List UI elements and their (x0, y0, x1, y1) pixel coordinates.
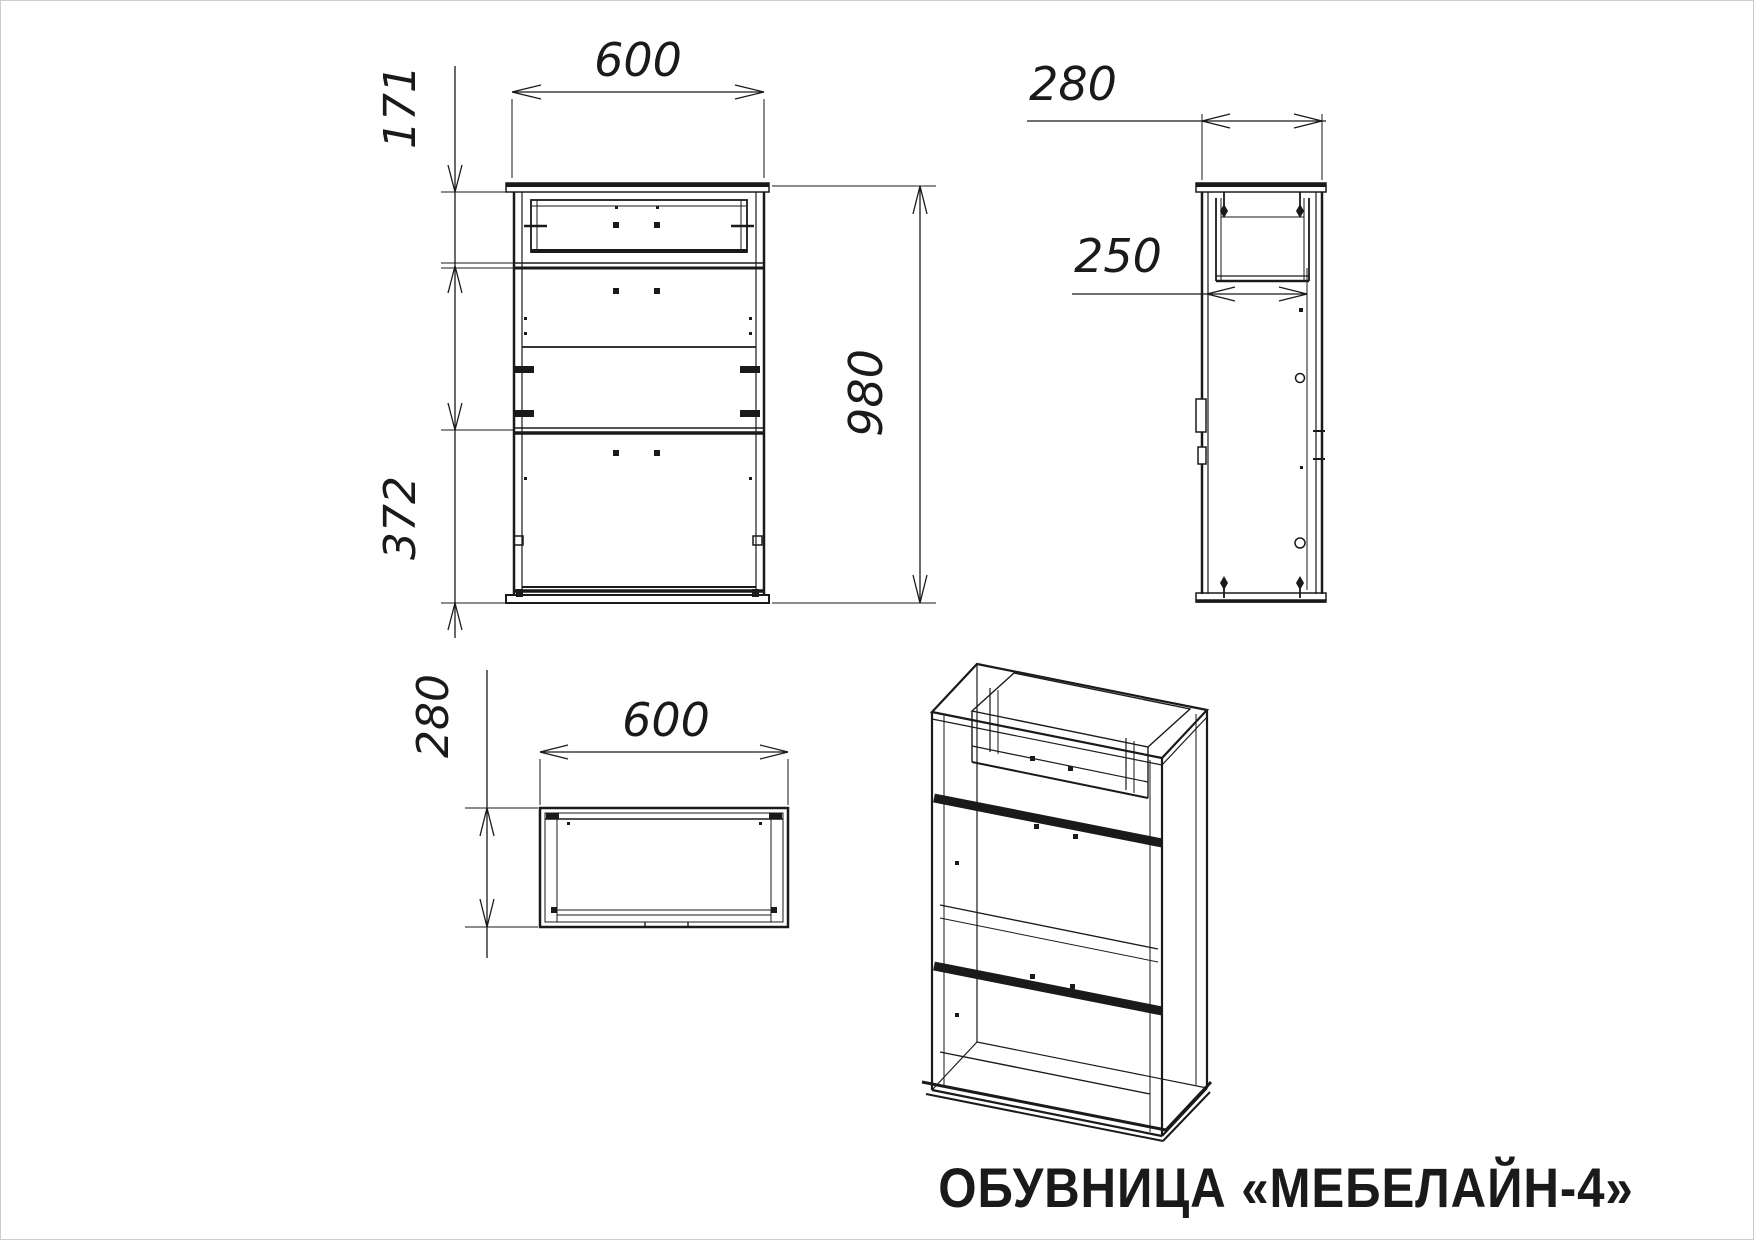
hinge-plate (1198, 447, 1206, 464)
screw-icon (1220, 576, 1228, 590)
page-title: ОБУВНИЦА «МЕБЕЛАЙН-4» (938, 1155, 1633, 1220)
screw-icon (1296, 576, 1304, 590)
dim-side-depth: 280 (1029, 57, 1117, 111)
dim-top-depth: 280 (408, 674, 459, 758)
front-view-dimensions: 600 171 372 980 (375, 33, 936, 638)
shelf-divider (934, 966, 1162, 1011)
mount-hole (1295, 538, 1305, 548)
front-drawer-niche (531, 200, 747, 252)
shelf-divider (934, 798, 1162, 843)
side-view: 280 250 (1027, 57, 1326, 602)
iso-view (922, 664, 1211, 1141)
dim-side-shelf-depth: 250 (1074, 229, 1162, 283)
front-view-cabinet (441, 183, 769, 603)
dim-front-top-section: 171 (375, 65, 426, 149)
mount-hole (1296, 374, 1305, 383)
top-view: 600 280 (408, 670, 788, 958)
caption-group: ОБУВНИЦА «МЕБЕЛАЙН-4» (938, 1155, 1633, 1220)
dim-front-width: 600 (594, 33, 682, 87)
dim-front-bottom-section: 372 (375, 476, 426, 560)
side-view-cabinet (1196, 183, 1326, 602)
top-view-cabinet (540, 808, 788, 927)
dim-front-height: 980 (839, 349, 893, 437)
blueprint-canvas: 600 171 372 980 (0, 0, 1754, 1240)
front-view: 600 171 372 980 (375, 33, 936, 638)
hinge-plate (1196, 399, 1206, 432)
dim-top-width: 600 (622, 693, 710, 747)
screw-icon (1296, 204, 1304, 218)
technical-drawing-sheet: 600 171 372 980 (0, 0, 1754, 1240)
